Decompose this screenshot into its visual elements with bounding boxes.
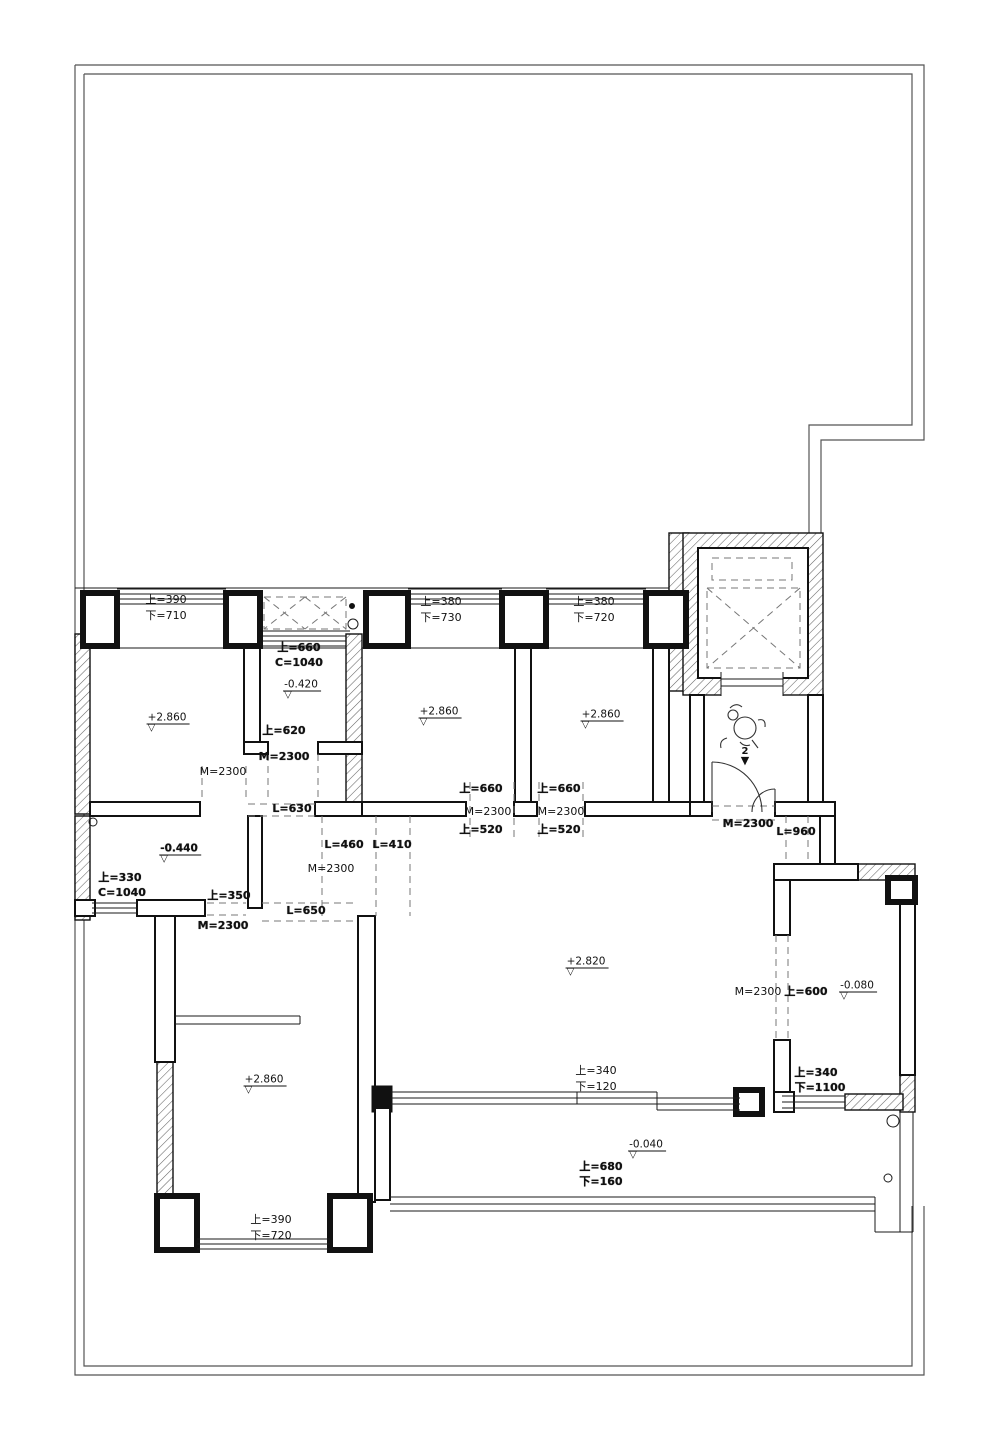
window-top-3 [546,589,646,604]
lower-left-bedroom-window [197,1239,330,1249]
elevator-shaft [683,533,823,696]
dashed-openings [202,754,808,1040]
view-marker-icon [721,705,766,748]
window-top-2 [408,589,502,604]
site-boundary [75,65,924,1375]
windows-lower [89,818,845,1249]
drain-icon [887,1115,899,1127]
window-flue-recess [258,631,350,646]
bathroom-window [89,818,137,913]
balcony [390,1112,913,1232]
floor-plan-drawing [0,0,1000,1440]
floor-plan-page: 上=390下=710上=380下=730上=380下=720上=660C=104… [0,0,1000,1440]
entry-door-swing [712,762,775,812]
drain-icon [884,1174,892,1182]
flue-dashed-box [264,597,358,629]
window-top-1 [117,589,226,604]
living-room-window [391,1092,740,1110]
